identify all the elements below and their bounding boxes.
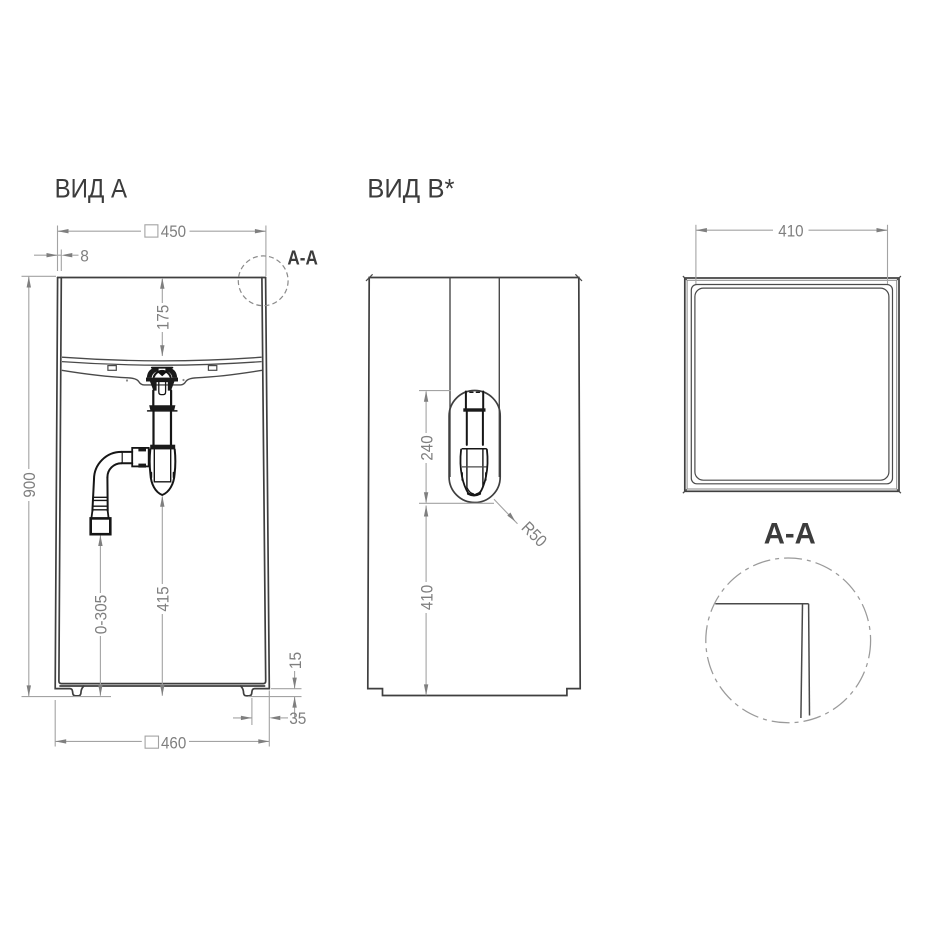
svg-text:ВИД A: ВИД A bbox=[55, 174, 128, 204]
svg-text:410: 410 bbox=[417, 585, 436, 610]
svg-text:ВИД B*: ВИД B* bbox=[367, 174, 455, 204]
svg-text:15: 15 bbox=[286, 652, 305, 669]
svg-text:900: 900 bbox=[20, 472, 39, 497]
svg-text:A-A: A-A bbox=[287, 248, 318, 270]
svg-text:415: 415 bbox=[154, 586, 173, 611]
svg-text:0-305: 0-305 bbox=[92, 595, 111, 635]
svg-text:8: 8 bbox=[80, 246, 89, 265]
svg-text:175: 175 bbox=[154, 305, 173, 330]
svg-text:450: 450 bbox=[161, 222, 186, 241]
svg-text:A-A: A-A bbox=[764, 518, 816, 551]
svg-text:35: 35 bbox=[289, 709, 306, 728]
svg-text:460: 460 bbox=[161, 733, 186, 752]
svg-text:240: 240 bbox=[417, 435, 436, 460]
svg-text:410: 410 bbox=[778, 221, 803, 240]
